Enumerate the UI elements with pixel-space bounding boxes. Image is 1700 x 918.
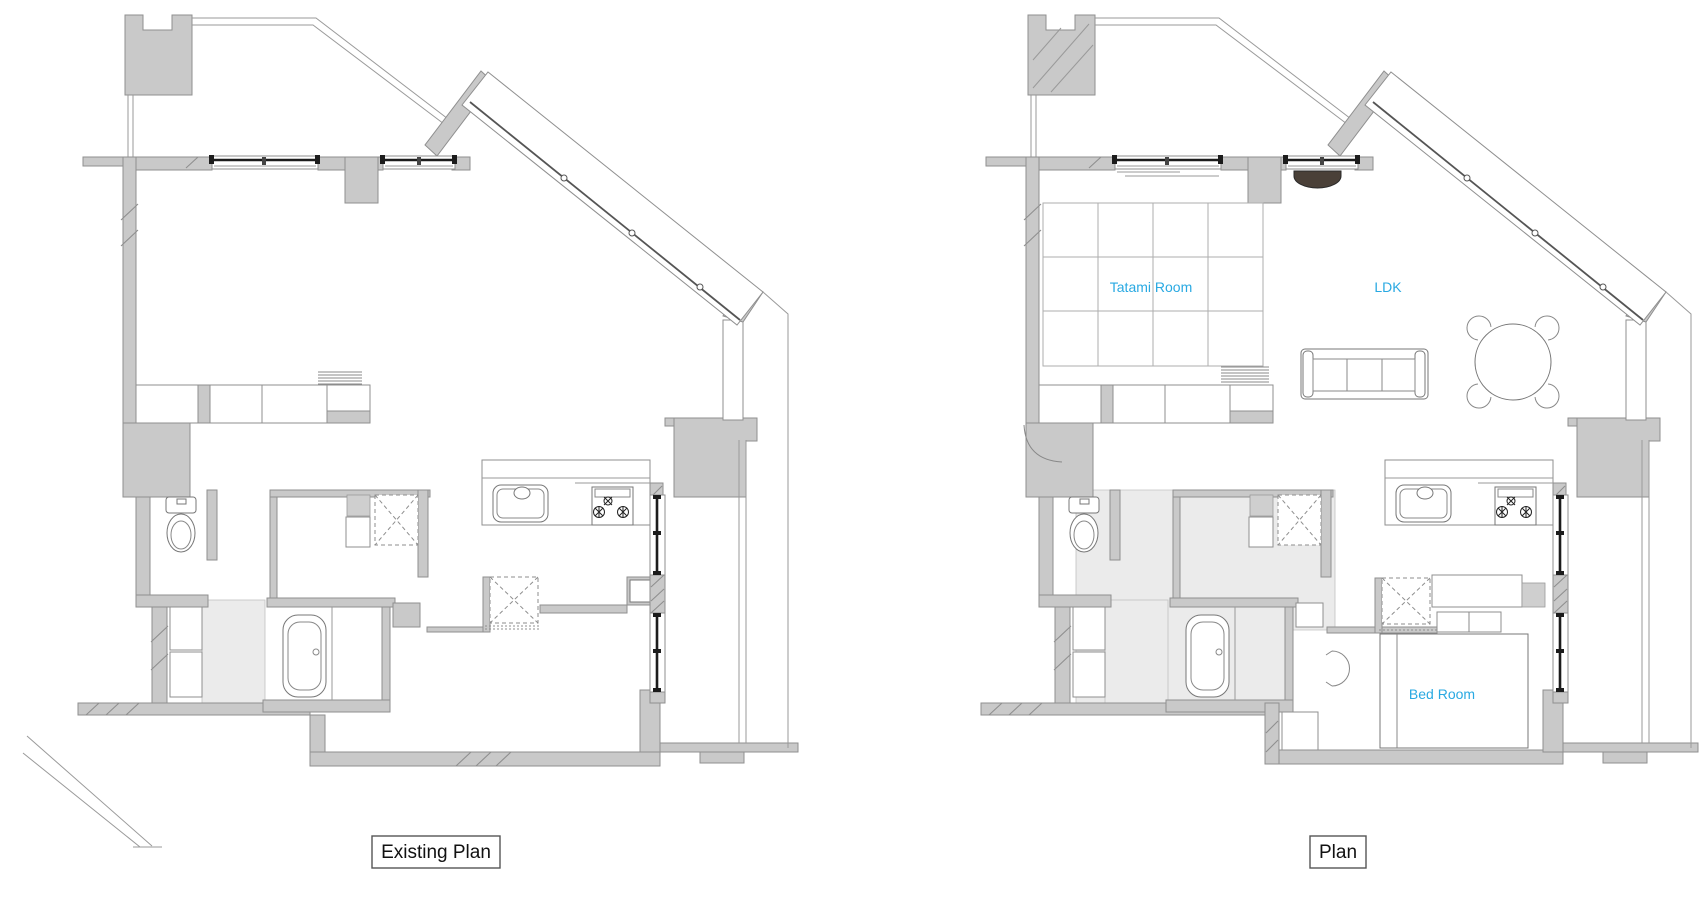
corner-leader-lines [23, 736, 162, 847]
existing-plan-title-box: Existing Plan [372, 836, 500, 868]
floor-plan-page: Tatami Room [0, 0, 1700, 918]
entrance-hall-floor [202, 600, 265, 711]
kitchen [1385, 460, 1553, 525]
stove [1495, 487, 1536, 525]
pipe-shaft [123, 423, 190, 497]
balcony [192, 18, 788, 748]
air-conditioner [1294, 171, 1341, 188]
existing-plan [78, 15, 798, 766]
wardrobe [1432, 575, 1522, 607]
ldk-label: LDK [1374, 279, 1402, 295]
bath-column [393, 603, 420, 627]
bedroom-label: Bed Room [1409, 686, 1475, 702]
kitchen-sink [1396, 485, 1451, 522]
proposed-plan-title-box: Plan [1310, 836, 1366, 868]
door-swing [1326, 651, 1350, 686]
tatami-room: Tatami Room [1043, 203, 1269, 382]
proposed-plan: Tatami Room [981, 15, 1698, 764]
proposed-plan-title: Plan [1319, 842, 1357, 863]
storage-room [1282, 712, 1318, 750]
bath-column [1296, 603, 1323, 627]
toilet-fixture [1069, 497, 1099, 552]
floor-plan-canvas: Tatami Room [0, 0, 1700, 918]
stove [592, 487, 633, 525]
pillar-block [125, 15, 192, 95]
shelf-stack [318, 372, 362, 384]
bedroom-closet [485, 577, 540, 629]
wall-stub [345, 157, 378, 203]
step-shelf [1221, 367, 1269, 382]
closet-row [136, 372, 370, 423]
wall-stub [1248, 157, 1281, 203]
entrance-storage [170, 607, 202, 697]
entrance-hall-floor [1105, 600, 1168, 711]
kitchen-sink [493, 485, 548, 522]
toilet-fixture [166, 497, 196, 552]
closet-row [1039, 385, 1273, 423]
existing-plan-title: Existing Plan [381, 842, 491, 863]
kitchen [482, 460, 650, 525]
washroom-fixtures [1249, 495, 1321, 547]
bathtub-fixture [283, 607, 332, 700]
tatami-room-label: Tatami Room [1110, 279, 1192, 295]
washroom-fixtures [346, 495, 418, 547]
pipe-shaft [1026, 423, 1093, 497]
bedroom: Bed Room [1326, 575, 1545, 748]
sofa [1301, 349, 1428, 399]
